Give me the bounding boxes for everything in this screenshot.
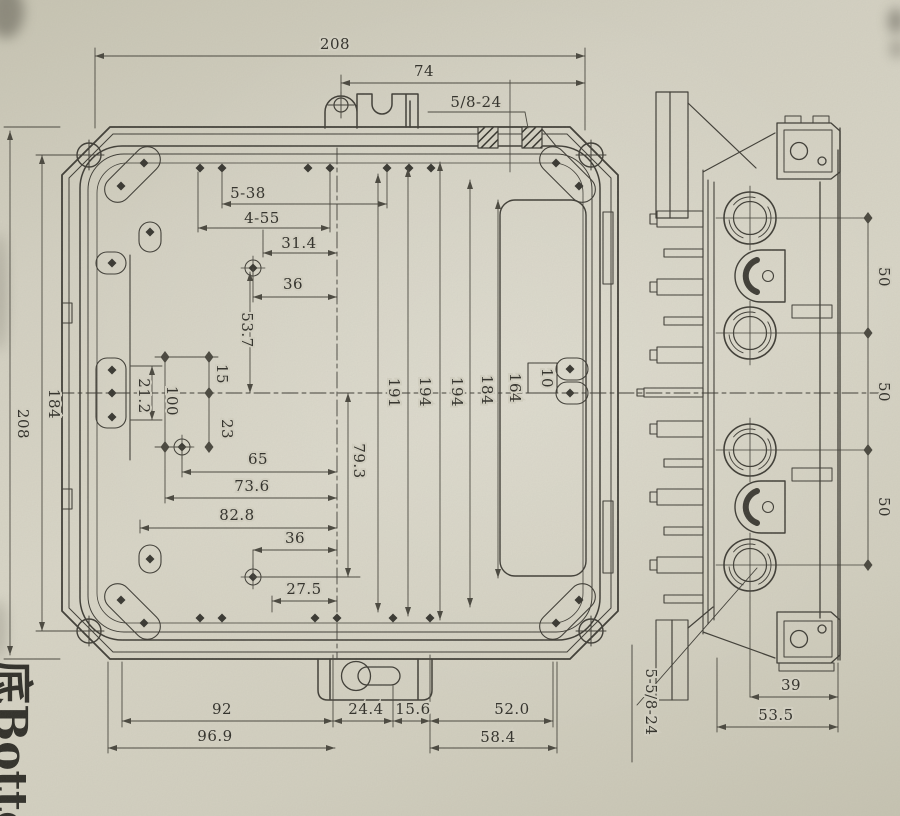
scan-grain [0, 0, 900, 816]
technical-drawing: 208 74 5/8-24 5-38 4-55 31.4 36 65 73.6 … [0, 0, 900, 816]
blueprint-scan: 208 74 5/8-24 5-38 4-55 31.4 36 65 73.6 … [0, 0, 900, 816]
